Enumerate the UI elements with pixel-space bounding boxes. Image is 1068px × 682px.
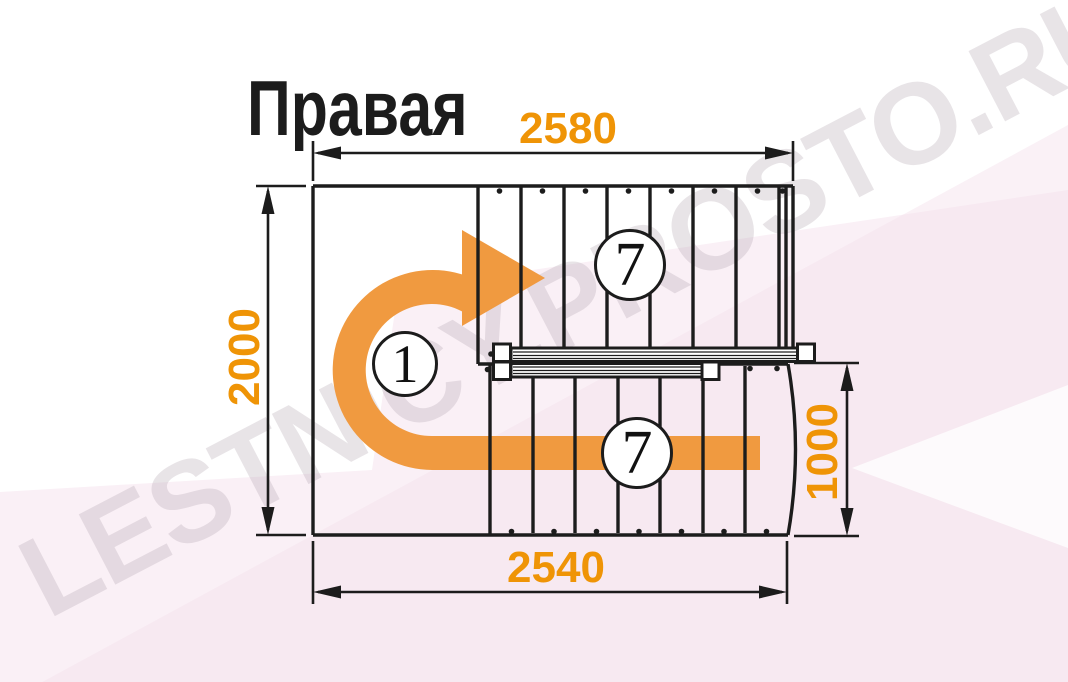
staircase-plan-drawing: LESTNICY.PROSTO.RU — [0, 0, 1068, 682]
dimension-label-right: 1000 — [796, 352, 850, 552]
step-count-badge-upper-flight: 7 — [594, 229, 666, 301]
landing-beams — [494, 344, 815, 380]
direction-arrow-head — [462, 230, 545, 326]
beam-cap — [494, 362, 511, 380]
curved-entry-edge — [788, 364, 796, 535]
dimension-label-top: 2580 — [468, 102, 668, 156]
step-count-badge-lower-flight: 7 — [601, 417, 673, 489]
step-number-badge-entry: 1 — [372, 331, 438, 397]
beam-cap — [494, 344, 511, 362]
dimension-label-bottom: 2540 — [456, 541, 656, 595]
dimension-label-left: 2000 — [218, 257, 272, 457]
page-title: Правая — [247, 68, 468, 148]
beam-cap — [702, 362, 719, 380]
